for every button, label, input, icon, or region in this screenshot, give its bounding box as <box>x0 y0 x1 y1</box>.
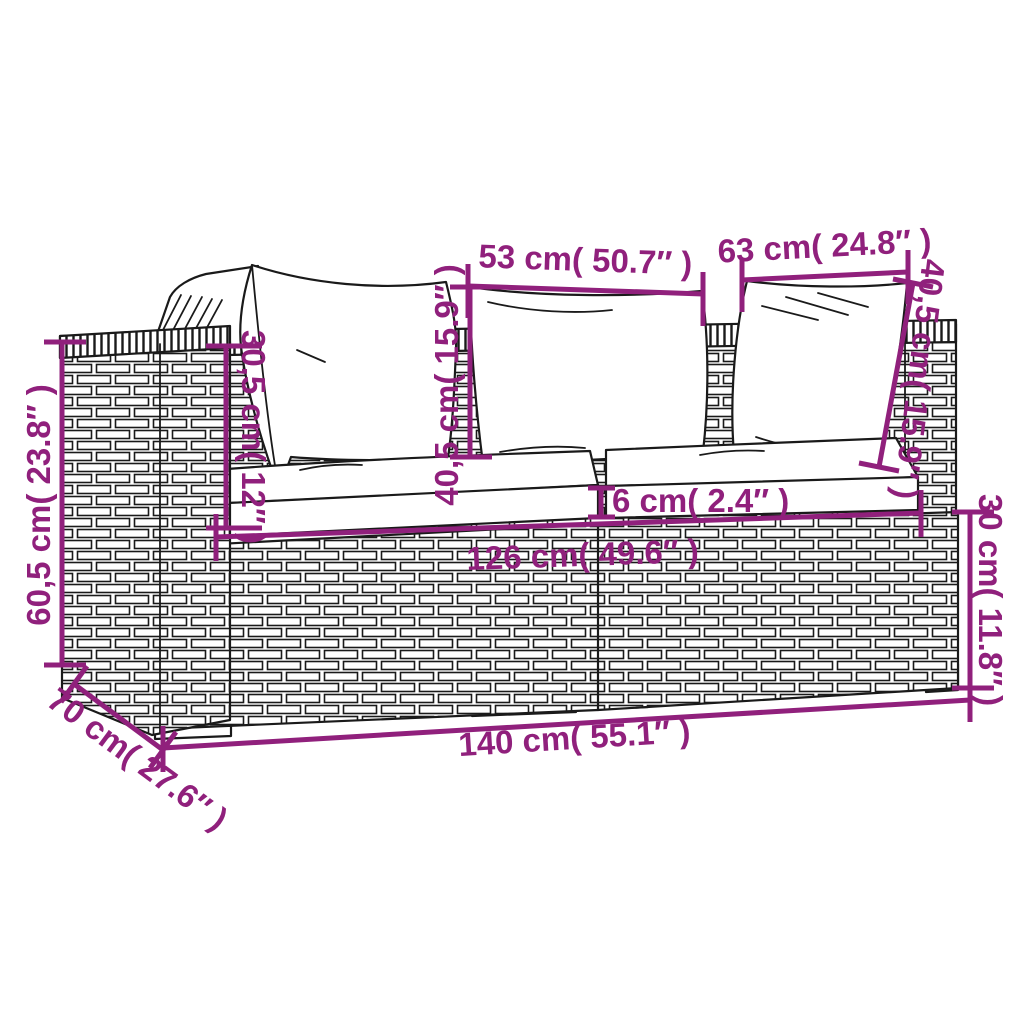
label-seat-cushion-thickness: 6 cm( 2.4″ ) <box>612 482 789 519</box>
product-dimension-diagram: 53 cm( 50.7″ ) 63 cm( 24.8″ ) 40,5 cm( 1… <box>0 0 1024 1024</box>
sofa-dimension-illustration: 53 cm( 50.7″ ) 63 cm( 24.8″ ) 40,5 cm( 1… <box>0 0 1024 1024</box>
label-back-pillow-right-width: 63 cm( 24.8″ ) <box>717 221 933 269</box>
label-total-width: 140 cm( 55.1″ ) <box>457 712 691 763</box>
back-pillow-center <box>470 287 707 464</box>
label-backrest-above-seat-height: 30,5 cm( 12″ ) <box>235 330 272 544</box>
left-armrest <box>60 326 230 735</box>
sofa-line-art <box>60 265 958 739</box>
label-armrest-height: 60,5 cm( 23.8″ ) <box>20 384 57 625</box>
label-back-pillow-height-center: 40,5 cm( 15.9″ ) <box>428 264 465 505</box>
label-back-pillow-left-width: 53 cm( 50.7″ ) <box>478 237 693 281</box>
label-base-height: 30 cm( 11.8″ ) <box>972 494 1009 706</box>
